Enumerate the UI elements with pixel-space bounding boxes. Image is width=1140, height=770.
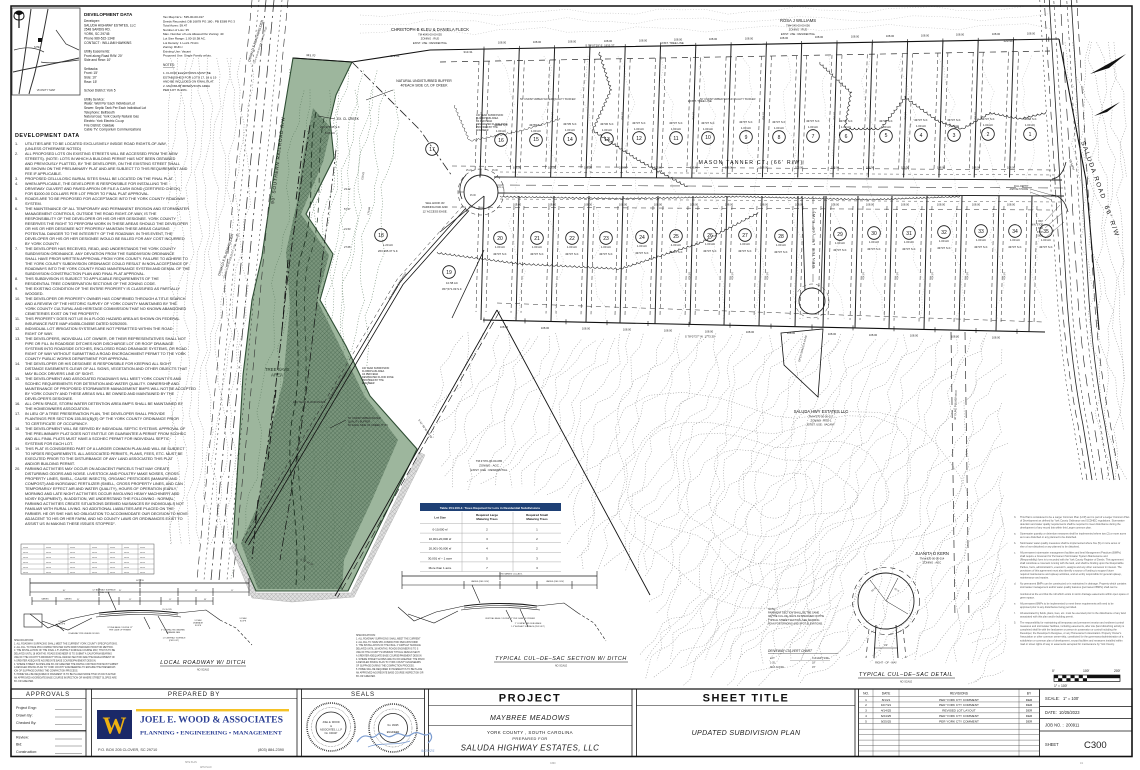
svg-text:454.97: 454.97	[832, 111, 836, 120]
svg-text:PLANTINGS PER SECTION 155-501(: PLANTINGS PER SECTION 155-501(B)(E) OF T…	[25, 417, 179, 421]
svg-text:VICINITY MAP: VICINITY MAP	[37, 88, 56, 92]
svg-text:xxx xx: xxx xx	[92, 567, 97, 569]
svg-text:SUBDIVISION CONSTRUCTION PLAN: SUBDIVISION CONSTRUCTION PLAN AND FINAL …	[25, 272, 145, 276]
svg-text:108.00: 108.00	[548, 166, 557, 170]
svg-text:6: 6	[845, 134, 848, 140]
svg-text:measures and stormwater fac: measures and stormwater facilities, incl…	[1020, 624, 1125, 628]
svg-text:xx xxx: xx xxx	[140, 547, 145, 549]
svg-text:monitored at the end that: monitored at the end that the roll which…	[1020, 592, 1129, 596]
svg-text:xxx xx: xxx xx	[124, 567, 129, 569]
svg-text:MAINTENANCE OF PROPOSED STORMW: MAINTENANCE OF PROPOSED STORMWATER MANAG…	[25, 387, 196, 391]
svg-text:108.00: 108.00	[498, 41, 507, 45]
svg-text:43737 S.F.: 43737 S.F.	[599, 252, 613, 256]
svg-text:b.: b.	[1014, 541, 1016, 545]
svg-text:xxx xx: xxx xx	[140, 557, 145, 559]
svg-text:43737 S.F.: 43737 S.F.	[902, 247, 916, 251]
svg-text:Stormwater water quality measu: Stormwater water quality measures shall …	[1020, 541, 1120, 545]
svg-text:5.26 AC: 5.26 AC	[325, 131, 335, 135]
svg-text:THE DEVELOPER OR PROPERTY OWNE: THE DEVELOPER OR PROPERTY OWNER HAS CONF…	[25, 297, 186, 301]
svg-text:22′: 22′	[884, 643, 888, 647]
svg-text:0′: 0′	[1052, 669, 1055, 673]
svg-text:PER LOT IS 16%.: PER LOT IS 16%.	[163, 88, 188, 92]
svg-text:343.70′: 343.70′	[306, 53, 316, 58]
svg-text:A DETAILED PAVING PLAN TO YORK: A DETAILED PAVING PLAN TO YORK COUNTY EN…	[356, 661, 421, 664]
svg-text:457,571.09 S.F.: 457,571.09 S.F.	[442, 287, 462, 291]
svg-text:108.00: 108.00	[619, 203, 628, 207]
svg-text:xxx xx: xxx xx	[70, 557, 75, 559]
svg-text:35: 35	[1043, 229, 1049, 235]
svg-text:APPROVALS: APPROVALS	[26, 691, 70, 698]
svg-text:108.00: 108.00	[709, 37, 718, 41]
svg-text:ASPHALT PLACE: ASPHALT PLACE	[1010, 188, 1029, 191]
svg-text:xxx xx: xxx xx	[46, 567, 51, 569]
svg-text:18″: 18″	[812, 662, 816, 665]
svg-text:e.: e.	[1014, 603, 1016, 606]
svg-text:maintenance and repairs.: maintenance and repairs.	[1020, 575, 1049, 579]
svg-text:JOEL E. WOOD & ASSOCIATES: JOEL E. WOOD & ASSOCIATES	[140, 715, 283, 725]
svg-text:50′ EACH SIDE OF CREEK (TYP.): 50′ EACH SIDE OF CREEK (TYP.)	[348, 423, 388, 427]
svg-text:SUBDIVISION ORDINANCE. ANY DEV: SUBDIVISION ORDINANCE. ANY DEVIATION FRO…	[25, 252, 175, 256]
svg-text:WOODED.: WOODED.	[25, 292, 44, 296]
svg-text:Project Engr:: Project Engr:	[16, 706, 37, 710]
svg-text:SALUDA HWY ESTATES LLC: SALUDA HWY ESTATES LLC	[794, 409, 849, 414]
svg-text:6% OR GREATER.: 6% OR GREATER.	[356, 675, 376, 678]
svg-text:23: 23	[603, 236, 609, 242]
svg-text:8.: 8.	[15, 277, 18, 281]
svg-text:ON THE CUL–DE–SACS AS SPECIFIE: ON THE CUL–DE–SACS AS SPECIFIED ON THE	[768, 615, 824, 618]
svg-text:108.00: 108.00	[533, 40, 542, 44]
svg-text:DEVELOPMENT DATA: DEVELOPMENT DATA	[15, 133, 80, 139]
svg-text:3: 3	[865, 709, 867, 713]
svg-text:NOISY EQUIPMENT). IN ADDITION,: NOISY EQUIPMENT). IN ADDITION, WE UNDERS…	[25, 497, 174, 501]
svg-text:1.00 AC: 1.00 AC	[949, 124, 959, 128]
svg-text:Phone 980-522-1348: Phone 980-522-1348	[84, 36, 115, 40]
svg-text:40′EACH SIDE C/L OF CREEK: 40′EACH SIDE C/L OF CREEK	[400, 83, 448, 87]
svg-text:43737 S.F.: 43737 S.F.	[879, 119, 893, 123]
svg-text:26: 26	[707, 233, 713, 239]
svg-text:1.00 AC: 1.00 AC	[637, 244, 647, 248]
svg-text:RIGHT - OF - WAY: RIGHT - OF - WAY	[875, 661, 897, 665]
svg-text:ENGINEER: ENGINEER	[476, 129, 489, 132]
svg-text:PREPARED BY: PREPARED BY	[168, 691, 220, 698]
svg-text:1.00 AC: 1.00 AC	[916, 124, 926, 128]
svg-text:1. ALL ROADWAY SURFACING SHAL: 1. ALL ROADWAY SURFACING SHALL MEET THE …	[14, 642, 118, 645]
svg-text:DER: DER	[1026, 714, 1033, 718]
svg-text:xxx xx: xxx xx	[110, 562, 115, 564]
svg-text:Bid:: Bid:	[16, 743, 22, 747]
svg-text:20: 20	[497, 236, 503, 242]
svg-text:108.00: 108.00	[760, 203, 769, 207]
svg-text:21.53: 21.53	[344, 227, 351, 231]
svg-text:108.00: 108.00	[654, 166, 663, 170]
svg-text:43737 S.F.: 43737 S.F.	[669, 121, 683, 125]
svg-text:ROADWAY PIPE WHERE ROUND: ROADWAY PIPE WHERE ROUND	[68, 632, 100, 635]
svg-text:R10′: R10′	[1038, 221, 1043, 223]
svg-text:PROPERTY LINES, SMELL, CAUSE I: PROPERTY LINES, SMELL, CAUSE INSECTS), O…	[25, 477, 178, 481]
svg-text:1.00 AC: 1.00 AC	[565, 128, 575, 132]
svg-text:EXIST. USE : VACANT: EXIST. USE : VACANT	[807, 422, 835, 426]
svg-text:PER YORK CTY COMMENT: PER YORK CTY COMMENT	[939, 720, 979, 724]
svg-text:108.00: 108.00	[869, 333, 878, 337]
svg-text:EXIST. USE : RESIDENTIAL: EXIST. USE : RESIDENTIAL	[413, 41, 448, 45]
svg-text:Review:: Review:	[16, 736, 29, 740]
svg-text:4. WHERE STREET SLOPES ARE 6%: 4. WHERE STREET SLOPES ARE 6% OR GREATER…	[14, 663, 119, 666]
svg-text:xxx xx: xxx xx	[46, 562, 51, 564]
svg-text:108.00: 108.00	[956, 33, 965, 37]
svg-text:23.22: 23.22	[344, 187, 351, 191]
svg-text:JOEL E. WOOD: JOEL E. WOOD	[322, 721, 339, 724]
svg-text:108.00: 108.00	[690, 166, 699, 170]
svg-text:108.00: 108.00	[584, 166, 593, 170]
svg-text:108.00: 108.00	[901, 166, 910, 170]
svg-text:1″ COMPACTED SUBGRADE: 1″ COMPACTED SUBGRADE	[515, 622, 542, 625]
svg-text:43737 S.F.: 43737 S.F.	[974, 245, 988, 249]
svg-text:1.00 AC: 1.00 AC	[776, 243, 786, 247]
svg-text:AN APPROVED AGGREGATE BASE COU: AN APPROVED AGGREGATE BASE COURSE INSPEC…	[14, 676, 117, 679]
svg-text:108.00: 108.00	[951, 335, 960, 339]
svg-text:108.00: 108.00	[992, 336, 1001, 340]
svg-text:60′ R/W: 60′ R/W	[136, 580, 145, 582]
svg-text:VARIES (REF. R/W): VARIES (REF. R/W)	[546, 580, 564, 583]
svg-text:424.97: 424.97	[895, 271, 899, 280]
svg-text:11.: 11.	[15, 317, 20, 321]
svg-text:100 YEAR FLOOD PLAIN: 100 YEAR FLOOD PLAIN	[293, 400, 325, 404]
svg-text:xxx xx: xxx xx	[140, 552, 145, 554]
svg-text:43737 S.F.: 43737 S.F.	[739, 120, 753, 124]
svg-text:MASON TANNER CT. (66′ R/W): MASON TANNER CT. (66′ R/W)	[699, 160, 804, 166]
svg-text:229,176.45 S.F.: 229,176.45 S.F.	[320, 125, 340, 129]
svg-text:DATE: DATE	[882, 692, 891, 696]
svg-text:xxx xx: xxx xx	[70, 562, 75, 564]
svg-text:FOR $1000.00 DOLLARS PER LOT: FOR $1000.00 DOLLARS PER LOT PRIOR TO FI…	[25, 192, 149, 196]
svg-text:A GREATER ADEQUATE BASE COURSE: A GREATER ADEQUATE BASE COURSE/PAVEMENT …	[356, 654, 422, 657]
svg-text:of Development as defined by Y: of Development as defined by York County…	[1020, 519, 1125, 523]
svg-text:108.00: 108.00	[828, 332, 837, 336]
svg-text:Developer, the Developer's: Developer, the Developer's Designee, or …	[1020, 631, 1122, 635]
svg-text:16: 16	[498, 138, 504, 144]
svg-text:454.97: 454.97	[550, 111, 554, 120]
svg-text:TREE SAVE: TREE SAVE	[265, 367, 289, 372]
svg-text:NO SCALE: NO SCALE	[555, 665, 567, 668]
svg-text:xxx xx: xxx xx	[110, 557, 115, 559]
svg-text:108.00: 108.00	[604, 39, 613, 43]
svg-text:1.00 AC: 1.00 AC	[976, 238, 986, 242]
svg-text:else of non-disturbed or any p: else of non-disturbed or any planned to …	[1020, 545, 1080, 549]
svg-text:DER: DER	[1026, 703, 1033, 707]
svg-text:108.00: 108.00	[831, 166, 840, 170]
svg-text:THE DEVELOPER HAS RECEIVED, RE: THE DEVELOPER HAS RECEIVED, READ, AND UN…	[25, 247, 176, 251]
svg-text:SHEET: SHEET	[1045, 742, 1059, 747]
svg-text:THE PRELIMINARY PLAT DOES NOT: THE PRELIMINARY PLAT DOES NOT ENTITLE OR…	[25, 432, 186, 436]
svg-text:11: 11	[673, 136, 678, 142]
svg-text:108.00: 108.00	[746, 330, 755, 334]
svg-text:200′: 200′	[1114, 669, 1121, 673]
svg-text:108.00: 108.00	[760, 166, 769, 170]
svg-text:xx xxx: xx xxx	[110, 547, 115, 549]
svg-text:OR HIS OR HER DESIGNEE NOT PRO: OR HIS OR HER DESIGNEE NOT PROPERLY MAIN…	[25, 227, 170, 231]
svg-text:RESIDENTIAL TREE CONSERVATION: RESIDENTIAL TREE CONSERVATION SECTIONS O…	[25, 282, 156, 286]
svg-text:THE HOMEOWNERS ASSOCIATION.: THE HOMEOWNERS ASSOCIATION.	[25, 407, 90, 411]
svg-text:43737 S.F.: 43737 S.F.	[981, 117, 995, 121]
svg-text:Parties, heirs, administrator': Parties, heirs, administrator's, executo…	[1020, 565, 1122, 569]
svg-text:S 78°07′29″ E 1935.37′: S 78°07′29″ E 1935.37′	[585, 44, 615, 48]
svg-text:School District: York 5: School District: York 5	[84, 89, 116, 93]
svg-text:POTENTIAL DANGER TO THE INTEGR: POTENTIAL DANGER TO THE INTEGRITY OF THE…	[25, 232, 173, 236]
svg-text:43737 S.F.: 43737 S.F.	[530, 252, 544, 256]
svg-text:10.: 10.	[15, 297, 20, 301]
svg-text:JOB NO. : 200911: JOB NO. : 200911	[1045, 723, 1080, 728]
svg-text:CENTRAL BASE COURSE 12″ PER C: CENTRAL BASE COURSE 12″ PER CASE OF PRIM…	[485, 617, 536, 620]
svg-text:REVISIONS: REVISIONS	[950, 692, 969, 696]
svg-text:1.00 AC: 1.00 AC	[939, 239, 949, 243]
svg-text:27: 27	[742, 233, 748, 239]
svg-text:required maintenance and upke: required maintenance and upkeep activiti…	[1020, 572, 1122, 576]
svg-text:associated with this plan and/: associated with this plan and/or buildin…	[1020, 615, 1074, 619]
svg-text:5: 5	[865, 720, 867, 724]
svg-text:ALL PROPOSED LOTS ON EXISTING: ALL PROPOSED LOTS ON EXISTING STREETS WI…	[25, 152, 178, 156]
svg-text:15.: 15.	[15, 377, 20, 381]
svg-text:SPECIFICATIONS:: SPECIFICATIONS:	[14, 639, 34, 642]
svg-text:The responsibility for maintai: The responsibility for maintaining all t…	[1020, 621, 1124, 625]
svg-text:R/W VARIES CUL AVG.: R/W VARIES CUL AVG.	[499, 573, 523, 576]
svg-text:AND A REVIEW OF THE HISTORIC S: AND A REVIEW OF THE HISTORIC SURVEY OF Y…	[25, 302, 177, 306]
svg-text:xxx xx: xxx xx	[70, 572, 75, 574]
svg-text:xxx xx: xxx xx	[110, 567, 115, 569]
svg-text:43737 S.F.: 43737 S.F.	[669, 250, 683, 254]
svg-text:424.97: 424.97	[1002, 271, 1006, 280]
svg-text:ION OF SLIPPAGE DURING THE COM: ION OF SLIPPAGE DURING THE COMPACTION PR…	[14, 670, 78, 673]
svg-text:SITE PLAN: SITE PLAN	[185, 761, 197, 764]
svg-text:DER: DER	[1026, 698, 1033, 702]
svg-text:2: 2	[865, 703, 867, 707]
svg-text:TM # 570-00-00-017: TM # 570-00-00-017	[809, 415, 834, 419]
svg-text:50′ UNDISTURBED WATER QUALIT: 50′ UNDISTURBED WATER QUALITY BUFFER	[520, 97, 576, 101]
svg-text:TM # 520-00-00-014: TM # 520-00-00-014	[920, 557, 945, 561]
svg-text:provisions of this agreemen: provisions of this agreement must also i…	[1020, 568, 1114, 572]
svg-text:FARMING ACTIVITIES CREATE SITU: FARMING ACTIVITIES CREATE SITUATIONS DEE…	[25, 502, 185, 506]
svg-text:25: 25	[673, 234, 679, 240]
svg-text:RIGHT OF WAY.: RIGHT OF WAY.	[25, 332, 53, 336]
svg-text:Electric: York Electric Co-op: Electric: York Electric Co-op	[84, 119, 124, 123]
svg-text:SUBBASE 9AM: SUBBASE 9AM	[166, 631, 180, 634]
svg-text:xxx xx: xxx xx	[124, 572, 129, 574]
svg-text:All permanent BMPs to be: All permanent BMPs to be implemented to …	[1020, 602, 1114, 606]
svg-text:1.00 AC: 1.00 AC	[671, 243, 681, 247]
svg-text:SLOPE: SLOPE	[240, 621, 247, 623]
svg-text:No. 16625: No. 16625	[387, 724, 399, 727]
svg-text:1: 1	[1029, 132, 1032, 138]
svg-text:Maturing Trees: Maturing Trees	[476, 517, 498, 521]
svg-text:NO SCALE: NO SCALE	[900, 681, 912, 684]
svg-text:10,001-20,000 sf: 10,001-20,000 sf	[429, 537, 452, 541]
svg-text:THIS PLAT IS CONSIDERED PART O: THIS PLAT IS CONSIDERED PART OF A LARGER…	[25, 447, 185, 451]
svg-text:TO NPDES REQUIREMENTS. ALL ASS: TO NPDES REQUIREMENTS. ALL ASSOCIATED PE…	[25, 452, 183, 456]
svg-text:CEMETERIES EXIST ON THE PROPER: CEMETERIES EXIST ON THE PROPERTY.	[25, 312, 99, 316]
svg-text:1.00 AC: 1.00 AC	[495, 245, 505, 249]
svg-text:PER YORK CTY COMMENT: PER YORK CTY COMMENT	[939, 703, 979, 707]
svg-text:24: 24	[639, 235, 645, 241]
svg-text:ZONING : RUD: ZONING : RUD	[421, 37, 440, 41]
svg-text:SCALE: 1″ = 100′: SCALE: 1″ = 100′	[1045, 696, 1079, 701]
svg-text:SPECIFICATIONS:: SPECIFICATIONS:	[356, 634, 376, 637]
svg-text:50′ UNDISTURBED WATER QUALIT: 50′ UNDISTURBED WATER QUALITY BUFFER	[700, 97, 756, 101]
svg-text:108.00: 108.00	[831, 203, 840, 207]
svg-text:TO CERTIFICATE OF OCCUPANCY.: TO CERTIFICATE OF OCCUPANCY.	[25, 422, 88, 426]
svg-text:stormwater management and/or: stormwater management and/or water quali…	[1020, 585, 1118, 589]
svg-text:15: 15	[533, 137, 539, 143]
svg-text:Construction:: Construction:	[16, 750, 37, 754]
svg-text:100′: 100′	[1083, 669, 1090, 673]
svg-text:1.00 AC: 1.00 AC	[774, 126, 784, 130]
svg-text:xxx xx: xxx xx	[124, 552, 129, 554]
svg-text:ZONING : RUD-1: ZONING : RUD-1	[811, 418, 832, 422]
svg-text:18: 18	[378, 233, 384, 239]
svg-text:SITE: SITE	[34, 45, 40, 49]
svg-text:DRIVEWAY CULVERT CHART: DRIVEWAY CULVERT CHART	[768, 649, 813, 653]
svg-text:SEALS: SEALS	[351, 691, 375, 698]
svg-text:CONTACT : WILLIAM HAWKINS: CONTACT : WILLIAM HAWKINS	[84, 41, 132, 45]
svg-text:INSURANCE RATE MAP #3455LC0455: INSURANCE RATE MAP #3455LC0455E DATED 5/…	[25, 322, 128, 326]
svg-text:AND ALL FINAL PLATS MUST HAVE: AND ALL FINAL PLATS MUST HAVE A SCDHEC P…	[25, 437, 170, 441]
svg-text:APN PLAN: APN PLAN	[200, 766, 212, 769]
svg-text:FARMING ACTIVITIES MAY OCCUR O: FARMING ACTIVITIES MAY OCCUR ON ADJACENT…	[25, 467, 170, 471]
svg-text:43737 S.F.: 43737 S.F.	[867, 247, 881, 251]
svg-text:43736 S.F.: 43736 S.F.	[600, 122, 614, 126]
svg-text:xx xxx: xx xxx	[70, 547, 75, 549]
svg-text:SHEET TITLE: SHEET TITLE	[703, 693, 790, 705]
svg-text:P.O. BOX 205 CLOVER, SC 29710: P.O. BOX 205 CLOVER, SC 29710	[98, 748, 157, 752]
svg-text:424.97: 424.97	[730, 271, 734, 280]
svg-text:7.: 7.	[15, 247, 18, 251]
svg-text:green space.: green space.	[1020, 596, 1035, 600]
svg-text:1.00 AC: 1.00 AC	[634, 127, 644, 131]
svg-text:AREA: AREA	[271, 372, 283, 377]
svg-text:9.: 9.	[15, 287, 18, 291]
svg-text:19: 19	[446, 270, 452, 276]
svg-text:43769 S.F.: 43769 S.F.	[529, 123, 543, 127]
svg-text:1. ALL ROADWAY SURFACING SHAL: 1. ALL ROADWAY SURFACING SHALL MEET THE …	[356, 637, 421, 640]
svg-text:4. WHERE STREET SLOPES ARE 6%: 4. WHERE STREET SLOPES ARE 6% OR GREATER…	[356, 658, 425, 661]
svg-text:DELAYED UNTIL 18 MONTHS. ROAD: DELAYED UNTIL 18 MONTHS. ROADS ENGINEER …	[356, 648, 419, 651]
svg-text:xxx xx: xxx xx	[70, 567, 75, 569]
svg-text:All permanent stormwater mana: All permanent stormwater management faci…	[1020, 551, 1121, 555]
svg-text:108.00: 108.00	[1007, 203, 1016, 207]
svg-text:EXIST. TREE LINE: EXIST. TREE LINE	[660, 41, 684, 45]
svg-text:2548 SARDIS RD.: 2548 SARDIS RD.	[84, 28, 111, 32]
svg-text:6.: 6.	[15, 207, 18, 211]
svg-text:DRIVEWAY CULVERT AND PAVED APR: DRIVEWAY CULVERT AND PAVED APRON OR FILE…	[25, 187, 181, 191]
svg-text:TM# 545-00-00-056: TM# 545-00-00-056	[786, 24, 810, 28]
svg-text:IN LIEU OF A TREE PRESERVATION: IN LIEU OF A TREE PRESERVATION PLAN, THE…	[25, 412, 166, 416]
svg-text:28: 28	[778, 234, 784, 240]
svg-text:d.: d.	[1014, 581, 1016, 585]
svg-text:108.00: 108.00	[921, 33, 930, 37]
svg-text:18.: 18.	[15, 427, 20, 431]
svg-text:19.: 19.	[15, 447, 20, 451]
svg-text:20.: 20.	[15, 467, 20, 471]
svg-text:108.00: 108.00	[937, 203, 946, 207]
svg-text:2. ALL FILL TO HAVE 95% COMPA: 2. ALL FILL TO HAVE 95% COMPACTION PER A…	[356, 641, 418, 644]
svg-text:EXECUTED PRIOR TO THE DISTURBA: EXECUTED PRIOR TO THE DISTURBANCE OF ANY…	[25, 457, 174, 461]
svg-text:10: 10	[705, 135, 711, 141]
svg-text:SYSTEMS INTO ROADSIDE DITCHES,: SYSTEMS INTO ROADSIDE DITCHES, ENCLOSED …	[25, 347, 187, 351]
svg-text:Drawn By:: Drawn By:	[16, 714, 33, 718]
svg-text:INDIVIDUAL LOT IRRIGATION SYST: INDIVIDUAL LOT IRRIGATION SYSTEMS ARE NO…	[25, 327, 173, 331]
svg-text:VARIES: VARIES	[64, 598, 72, 601]
svg-text:13.: 13.	[15, 337, 20, 341]
svg-text:PAVEMENT SECTION SHALL BE THE: PAVEMENT SECTION SHALL BE THE SAME	[768, 612, 819, 615]
svg-text:ALL OPEN SPACE, STORM WATER DE: ALL OPEN SPACE, STORM WATER DETENTION AR…	[25, 402, 184, 406]
svg-text:xx xxx: xx xxx	[124, 547, 129, 549]
svg-text:THE DEVELOPERS, INDIVIDUAL LOT: THE DEVELOPERS, INDIVIDUAL LOT OWNER, OR…	[25, 337, 187, 341]
svg-text:Association or other common ow: Association or other common owner-ship, …	[1020, 635, 1124, 639]
svg-text:108.00: 108.00	[639, 38, 648, 42]
svg-text:NO SCALE: NO SCALE	[197, 669, 209, 672]
svg-text:10.58 AC: 10.58 AC	[446, 281, 458, 285]
svg-text:EXIST. USE : RESIDENTIAL: EXIST. USE : RESIDENTIAL	[471, 468, 508, 472]
svg-text:Water: Well Per Each Individua: Water: Well Per Each Individual Lot	[84, 102, 135, 106]
svg-text:108.00: 108.00	[623, 328, 632, 332]
svg-text:454.97: 454.97	[620, 111, 624, 120]
svg-text:43737 S.F.: 43737 S.F.	[1008, 245, 1022, 249]
svg-text:AND PREVIOUSLY PLATTED, BY THE: AND PREVIOUSLY PLATTED, BY THE DEVELOPER…	[25, 162, 180, 166]
svg-text:Front along Road R/W: 20′: Front along Road R/W: 20′	[84, 54, 123, 58]
svg-text:43737 S.F.: 43737 S.F.	[947, 118, 961, 122]
svg-text:PREPARED FOR: PREPARED FOR	[512, 736, 547, 741]
svg-text:108.00: 108.00	[910, 334, 919, 338]
svg-text:45.00: 45.00	[470, 195, 476, 197]
svg-text:subdivision or common plan of: subdivision or common plan of developmen…	[1020, 638, 1123, 642]
svg-text:108.00: 108.00	[795, 166, 804, 170]
svg-text:as to are disturbed or any pla: as to are disturbed or any planned to be…	[1020, 535, 1077, 539]
svg-text:424.97: 424.97	[930, 271, 934, 280]
svg-text:BE SHOWN ON THE PRELIMINARY PL: BE SHOWN ON THE PRELIMINARY PLAT AND ARE…	[25, 167, 188, 171]
svg-text:123.44: 123.44	[1003, 39, 1013, 43]
svg-text:1.00 AC: 1.00 AC	[567, 245, 577, 249]
svg-text:DER: DER	[1026, 720, 1033, 724]
svg-text:1.00 AC: 1.00 AC	[869, 240, 879, 244]
svg-text:1.00 AC: 1.00 AC	[1010, 238, 1020, 242]
svg-text:4: 4	[865, 714, 867, 718]
svg-text:1.00 AC: 1.00 AC	[904, 240, 914, 244]
svg-text:No permanent BMPs can be: No permanent BMPs can be constructed or …	[1020, 581, 1127, 585]
svg-text:1.00 AC: 1.00 AC	[740, 242, 750, 246]
svg-text:PER YORK CTY COMMENT: PER YORK CTY COMMENT	[939, 698, 979, 702]
svg-text:108.00: 108.00	[745, 36, 754, 40]
svg-text:1.00 AC: 1.00 AC	[835, 241, 845, 245]
svg-text:xxx xx: xxx xx	[70, 552, 75, 554]
svg-text:(PER LIFT): (PER LIFT)	[169, 640, 179, 642]
svg-text:MANAGEMENT CONTROLS, OUTSIDE T: MANAGEMENT CONTROLS, OUTSIDE THE ROAD RI…	[25, 212, 157, 216]
svg-text:43737 S.F.: 43737 S.F.	[833, 248, 847, 252]
svg-text:108.00: 108.00	[705, 329, 714, 333]
svg-text:20,001-30,000 sf: 20,001-30,000 sf	[429, 547, 452, 551]
svg-text:Maturing Trees: Maturing Trees	[526, 517, 548, 521]
svg-text:This Plat is considered to be: This Plat is considered to be a Larger C…	[1020, 515, 1130, 519]
svg-text:TM #545-00-00-055: TM #545-00-00-055	[418, 33, 442, 37]
svg-text:108.00: 108.00	[582, 327, 591, 331]
svg-text:108.00: 108.00	[568, 40, 577, 44]
svg-text:424.97: 424.97	[965, 271, 969, 280]
svg-text:THIS PROPERTY DOES NOT LIE IN: THIS PROPERTY DOES NOT LIE IN A FLOOD HA…	[25, 317, 180, 321]
svg-text:xxx xx: xxx xx	[23, 557, 28, 559]
svg-text:1.00 AC: 1.00 AC	[705, 242, 715, 246]
svg-text:424.97: 424.97	[765, 271, 769, 280]
svg-text:1.00 AC: 1.00 AC	[983, 123, 993, 127]
svg-text:STREETS). (NOTE: LOTS IN WHICH: STREETS). (NOTE: LOTS IN WHICH A BUILDIN…	[25, 157, 176, 161]
svg-text:2% SLOPE: 2% SLOPE	[162, 609, 172, 611]
svg-text:1.00 AC: 1.00 AC	[602, 128, 612, 132]
